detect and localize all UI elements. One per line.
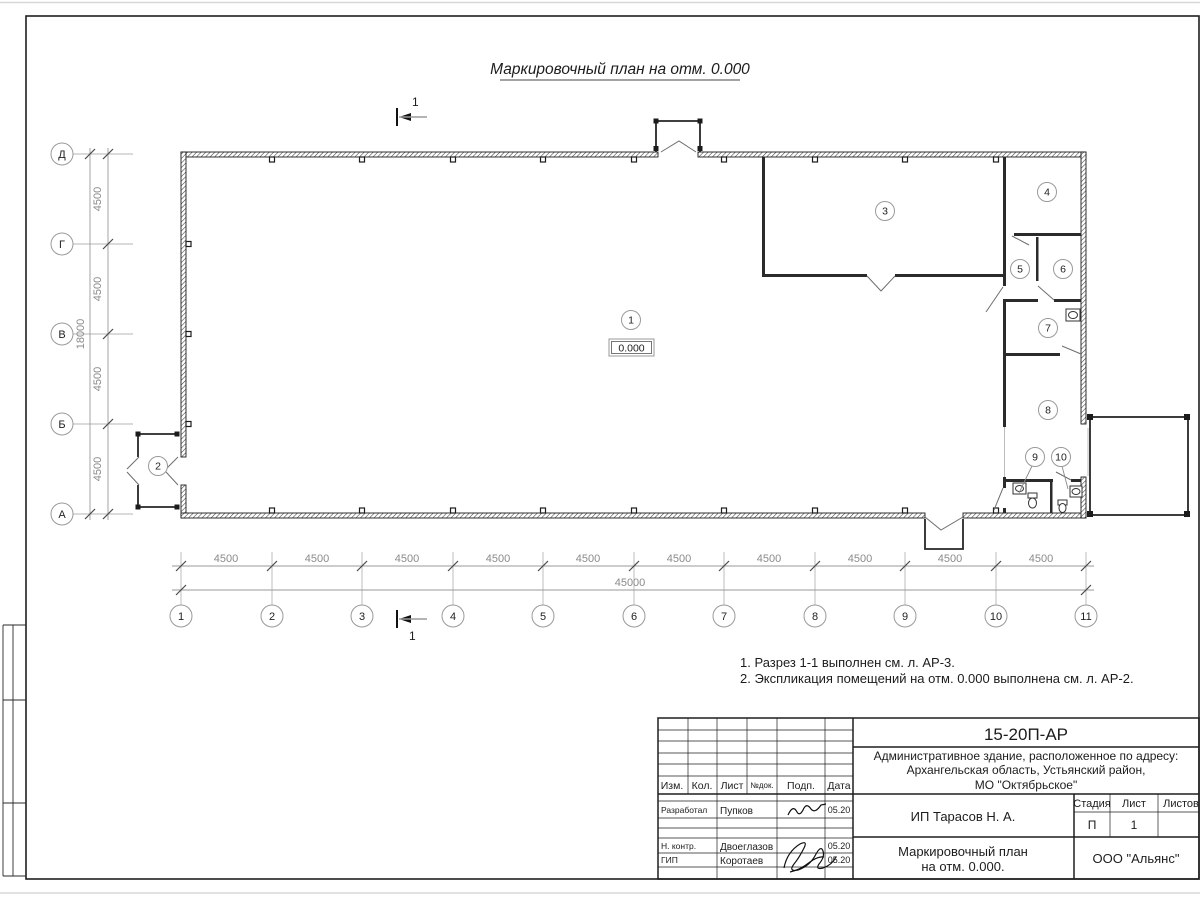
room-number: 2: [155, 461, 161, 473]
axis-row-label: А: [58, 509, 66, 521]
tb-address-line: МО "Октябрьское": [975, 778, 1077, 792]
dim-4500: 4500: [92, 457, 104, 481]
dim-4500: 4500: [757, 553, 781, 565]
room-number: 8: [1045, 405, 1051, 417]
tb-drawing-title: Маркировочный план: [898, 844, 1028, 859]
tb-sheets-label: Листов: [1163, 798, 1199, 810]
tb-col-izm: Изм.: [661, 780, 684, 792]
title-block: Изм. Кол. Лист №док. Подп. Дата Разработ…: [658, 718, 1199, 879]
row-axis-labels: Д Г В Б А: [58, 149, 66, 521]
tb-role: ГИП: [661, 855, 678, 865]
dim-4500: 4500: [848, 553, 872, 565]
room-number: 5: [1017, 264, 1023, 276]
dimension-lines: [90, 148, 1094, 590]
room-numbers: 1 2 3 4 5 6 7 8 9 10: [155, 187, 1067, 473]
wall-openings: [1005, 427, 1089, 477]
tb-stage-label: Стадия: [1073, 798, 1111, 810]
note-line: 2. Экспликация помещений на отм. 0.000 в…: [740, 671, 1134, 686]
tb-sheet-value: 1: [1131, 818, 1138, 832]
porch-bottom: [925, 519, 963, 549]
tb-client: ИП Тарасов Н. А.: [911, 809, 1016, 824]
dim-4500: 4500: [92, 187, 104, 211]
axis-row-label: Г: [59, 239, 65, 251]
axis-row-label: В: [58, 329, 65, 341]
door-swings: [127, 141, 1081, 530]
exterior-walls: [181, 152, 1086, 518]
frame-side-boxes: [3, 625, 26, 876]
dim-4500: 4500: [305, 553, 329, 565]
axis-col-label: 5: [540, 611, 546, 623]
axis-col-label: 7: [721, 611, 727, 623]
room-number: 10: [1055, 452, 1067, 464]
col-axis-labels: 1 2 3 4 5 6 7 8 9 10 11: [178, 611, 1092, 623]
section-label: 1: [412, 95, 419, 109]
sink-room10: [1070, 486, 1082, 497]
section-mark-bottom: 1: [397, 610, 427, 643]
tb-address-line: Архангельская область, Устьянский район,: [907, 763, 1146, 777]
dim-18000: 18000: [75, 319, 87, 350]
dim-4500: 4500: [576, 553, 600, 565]
tb-date: 05.20: [828, 841, 851, 851]
axis-row-label: Д: [58, 149, 66, 161]
tb-col-podp: Подп.: [787, 780, 815, 792]
axis-lines: [73, 154, 1086, 605]
axis-col-label: 11: [1080, 611, 1091, 623]
dim-4500: 4500: [667, 553, 691, 565]
axis-col-label: 4: [450, 611, 456, 623]
axis-row-label: Б: [58, 419, 65, 431]
tb-date: 05.20: [828, 805, 851, 815]
tb-drawing-title: на отм. 0.000.: [921, 859, 1004, 874]
tb-name: Коротаев: [720, 856, 763, 867]
floor-plan-svg: Маркировочный план на отм. 0.000: [0, 0, 1200, 900]
room-number: 1: [628, 315, 634, 327]
axis-col-label: 2: [269, 611, 275, 623]
tb-col-data: Дата: [827, 780, 850, 792]
tb-role: Н. контр.: [661, 841, 696, 851]
elevation-mark: 0.000: [609, 339, 654, 356]
dimension-ticks: [85, 149, 1091, 595]
axis-col-label: 1: [178, 611, 184, 623]
axis-col-label: 6: [631, 611, 637, 623]
tb-col-list: Лист: [721, 780, 744, 792]
tb-name: Пупков: [720, 806, 753, 817]
note-line: 1. Разрез 1-1 выполнен см. л. АР-3.: [740, 655, 955, 670]
toilet-room9: [1028, 493, 1037, 508]
tb-role: Разработал: [661, 805, 707, 815]
dim-4500: 4500: [1029, 553, 1053, 565]
room-bubbles: [149, 183, 1073, 476]
plan-title: Маркировочный план на отм. 0.000: [490, 61, 750, 80]
platform-right: [1087, 414, 1190, 517]
elevation-value: 0.000: [618, 343, 644, 355]
axis-col-label: 9: [902, 611, 908, 623]
tb-address-line: Административное здание, расположенное п…: [874, 749, 1179, 763]
tb-name: Двоеглазов: [720, 842, 773, 853]
section-label: 1: [409, 629, 416, 643]
entrance-vestibule-top: [654, 119, 703, 153]
tb-stage-value: П: [1088, 818, 1097, 832]
axis-col-label: 8: [812, 611, 818, 623]
room-number: 6: [1060, 264, 1066, 276]
tb-sheet-label: Лист: [1122, 798, 1146, 810]
room-number: 3: [882, 206, 888, 218]
room-number: 4: [1044, 187, 1050, 199]
dim-4500: 4500: [938, 553, 962, 565]
dim-4500: 4500: [92, 277, 104, 301]
drawing-sheet: { "sheet": { "plan_title": "Маркировочны…: [0, 0, 1200, 900]
room-number: 9: [1032, 452, 1038, 464]
tb-company: ООО "Альянс": [1093, 851, 1180, 866]
axis-col-label: 3: [359, 611, 365, 623]
sink-room7: [1066, 309, 1080, 321]
axis-col-label: 10: [990, 611, 1002, 623]
plan-notes: 1. Разрез 1-1 выполнен см. л. АР-3. 2. Э…: [740, 655, 1134, 686]
room-number: 7: [1045, 323, 1051, 335]
dim-4500: 4500: [395, 553, 419, 565]
tb-doc-number: 15-20П-АР: [984, 725, 1068, 744]
dim-45000: 45000: [615, 577, 646, 589]
dimension-texts: 4500 4500 4500 4500 18000 4500 4500 4500…: [75, 187, 1053, 589]
section-mark-top: 1: [397, 95, 427, 126]
tb-col-kol: Кол.: [692, 780, 713, 792]
dim-4500: 4500: [214, 553, 238, 565]
tb-col-ndok: №док.: [750, 781, 773, 790]
dim-4500: 4500: [486, 553, 510, 565]
toilet-room10: [1058, 500, 1067, 513]
dim-4500: 4500: [92, 367, 104, 391]
plan-title-text: Маркировочный план на отм. 0.000: [490, 61, 750, 78]
